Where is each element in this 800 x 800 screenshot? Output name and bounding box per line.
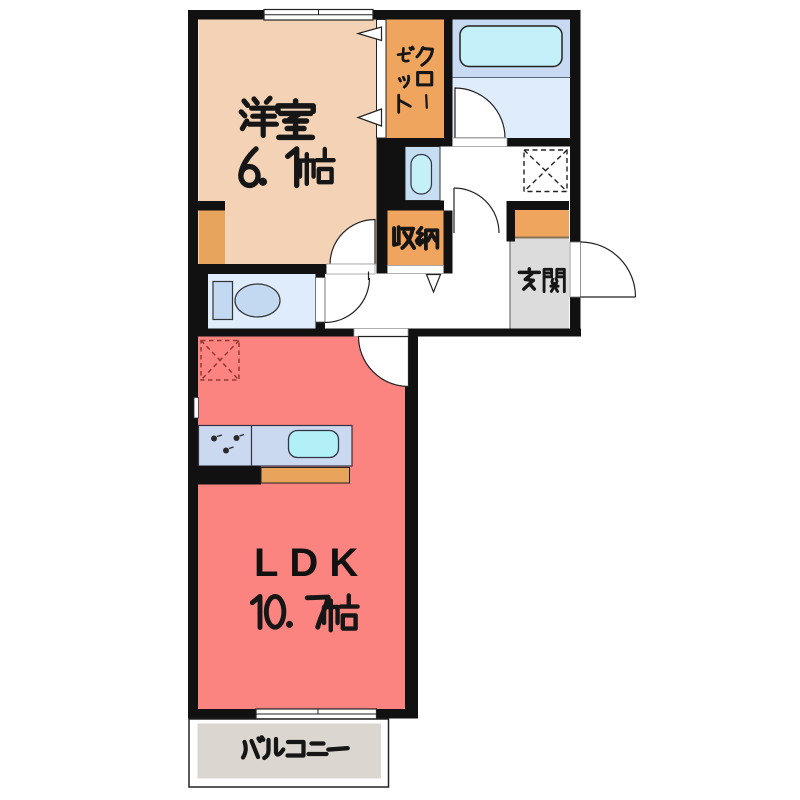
svg-text:LDK: LDK: [254, 541, 369, 585]
